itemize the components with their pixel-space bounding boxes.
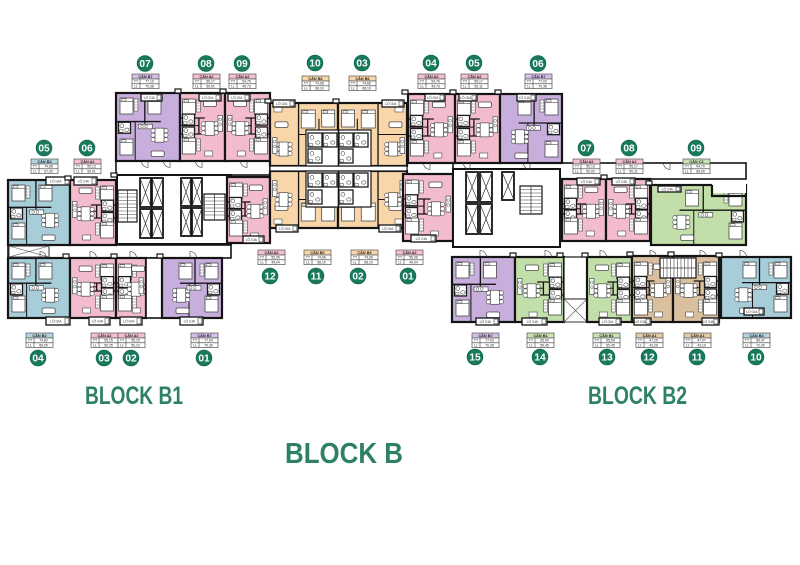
svg-text:47,25: 47,25 <box>649 339 658 343</box>
svg-text:TT: TT <box>33 165 37 169</box>
svg-text:LL: LL <box>463 85 467 89</box>
svg-text:LL: LL <box>398 261 402 265</box>
svg-text:70,36: 70,36 <box>538 85 547 89</box>
svg-text:TT: TT <box>638 339 642 343</box>
svg-text:13: 13 <box>601 353 613 364</box>
svg-text:TT: TT <box>120 339 124 343</box>
svg-text:12: 12 <box>264 272 276 283</box>
svg-text:09: 09 <box>236 59 248 70</box>
svg-text:65,54: 65,54 <box>606 339 615 343</box>
svg-text:77,03: 77,03 <box>538 80 547 84</box>
svg-text:CĂN A2: CĂN A2 <box>81 159 95 164</box>
svg-text:LÔ GIA: LÔ GIA <box>50 318 62 323</box>
svg-text:70,38: 70,38 <box>145 85 154 89</box>
svg-text:CĂN B6: CĂN B6 <box>310 250 324 255</box>
svg-text:CĂN B2: CĂN B2 <box>37 159 51 164</box>
svg-text:05: 05 <box>468 59 480 70</box>
svg-text:TT: TT <box>353 256 357 260</box>
svg-text:68,10: 68,10 <box>364 261 373 265</box>
svg-text:TT: TT <box>745 339 749 343</box>
svg-text:LÔ GIA: LÔ GIA <box>202 95 214 100</box>
svg-text:77,03: 77,03 <box>485 339 494 343</box>
svg-text:LL: LL <box>595 344 599 348</box>
svg-text:74,66: 74,66 <box>317 256 326 260</box>
svg-text:CĂN A2: CĂN A2 <box>623 159 637 164</box>
svg-text:LL: LL <box>685 170 689 174</box>
svg-text:CĂN B7: CĂN B7 <box>197 333 211 338</box>
svg-text:LL: LL <box>745 344 749 348</box>
svg-text:50,12: 50,12 <box>131 344 140 348</box>
svg-text:CĂN C2: CĂN C2 <box>689 159 703 164</box>
svg-text:LÔ GIA: LÔ GIA <box>519 95 531 100</box>
svg-text:01: 01 <box>198 354 210 365</box>
svg-text:85,00: 85,00 <box>696 170 705 174</box>
svg-text:TT: TT <box>474 339 478 343</box>
svg-text:BLOCK B1: BLOCK B1 <box>85 382 183 410</box>
svg-text:04: 04 <box>425 59 437 70</box>
svg-text:CĂN A1: CĂN A1 <box>643 333 657 338</box>
svg-text:LÔ GIA: LÔ GIA <box>602 319 614 324</box>
svg-text:06: 06 <box>532 59 544 70</box>
svg-text:LL: LL <box>304 87 308 91</box>
svg-text:LÔ GIA: LÔ GIA <box>184 318 196 323</box>
svg-text:TT: TT <box>260 256 264 260</box>
svg-text:49,04: 49,04 <box>271 261 280 265</box>
svg-text:50,11: 50,11 <box>474 85 482 89</box>
svg-text:CĂN A1: CĂN A1 <box>691 333 705 338</box>
svg-text:03: 03 <box>98 354 110 365</box>
svg-text:LL: LL <box>193 344 197 348</box>
svg-text:55,15: 55,15 <box>131 339 140 343</box>
svg-text:LL: LL <box>33 170 37 174</box>
svg-text:80,47: 80,47 <box>756 339 765 343</box>
svg-text:59,45: 59,45 <box>606 344 615 348</box>
svg-text:10: 10 <box>309 59 321 70</box>
svg-text:TT: TT <box>306 256 310 260</box>
svg-text:02: 02 <box>125 354 137 365</box>
svg-text:CĂN A2: CĂN A2 <box>468 74 482 79</box>
svg-text:LL: LL <box>686 344 690 348</box>
svg-text:43,10: 43,10 <box>697 344 706 348</box>
svg-text:LL: LL <box>351 87 355 91</box>
svg-text:70,39: 70,39 <box>485 344 494 348</box>
svg-text:TT: TT <box>463 80 467 84</box>
svg-text:LÔ GIA: LÔ GIA <box>746 309 758 314</box>
svg-text:CĂN B6: CĂN B6 <box>355 76 369 81</box>
svg-text:74,82: 74,82 <box>39 339 48 343</box>
svg-text:TT: TT <box>527 80 531 84</box>
svg-text:50,25: 50,25 <box>104 344 113 348</box>
svg-text:CĂN B4: CĂN B4 <box>749 333 764 338</box>
svg-text:06: 06 <box>81 144 93 155</box>
svg-text:74,66: 74,66 <box>362 82 371 86</box>
svg-text:10: 10 <box>750 353 762 364</box>
svg-text:LL: LL <box>638 344 642 348</box>
svg-text:03: 03 <box>356 59 368 70</box>
svg-text:68,10: 68,10 <box>315 87 324 91</box>
svg-text:TT: TT <box>575 165 579 169</box>
svg-text:LL: LL <box>618 170 622 174</box>
svg-text:50,02: 50,02 <box>586 170 595 174</box>
svg-text:LL: LL <box>306 261 310 265</box>
svg-text:12: 12 <box>643 353 655 364</box>
svg-text:LL: LL <box>195 85 199 89</box>
svg-text:BLOCK B2: BLOCK B2 <box>588 382 687 410</box>
svg-text:CĂN A2: CĂN A2 <box>265 250 279 255</box>
svg-text:LL: LL <box>76 170 80 174</box>
svg-text:54,76: 54,76 <box>242 80 251 84</box>
svg-text:55,06: 55,06 <box>271 256 280 260</box>
svg-text:LL: LL <box>353 261 357 265</box>
svg-text:LÔ GIA: LÔ GIA <box>231 95 243 100</box>
svg-text:LÔ GIA: LÔ GIA <box>427 95 439 100</box>
svg-text:50,11: 50,11 <box>629 170 637 174</box>
svg-text:CĂN B7: CĂN B7 <box>531 74 545 79</box>
svg-text:43,29: 43,29 <box>649 344 658 348</box>
svg-text:CĂN A2: CĂN A2 <box>425 74 439 79</box>
svg-text:68,10: 68,10 <box>317 261 326 265</box>
svg-text:11: 11 <box>311 272 322 283</box>
svg-text:CĂN A2: CĂN A2 <box>200 74 214 79</box>
svg-text:07: 07 <box>580 144 592 155</box>
svg-text:LÔ GIA: LÔ GIA <box>279 226 291 231</box>
svg-text:LÔ GIA: LÔ GIA <box>92 318 104 323</box>
svg-text:50,91: 50,91 <box>206 85 215 89</box>
svg-text:LÔ GIA: LÔ GIA <box>460 95 472 100</box>
svg-text:LL: LL <box>474 344 478 348</box>
svg-text:LÔ GIA: LÔ GIA <box>78 178 90 183</box>
svg-text:LL: LL <box>527 85 531 89</box>
svg-text:08: 08 <box>623 144 635 155</box>
svg-text:LÔ GIA: LÔ GIA <box>385 101 397 106</box>
svg-text:LL: LL <box>93 344 97 348</box>
svg-text:CĂN A2: CĂN A2 <box>580 159 594 164</box>
svg-text:TT: TT <box>304 82 308 86</box>
svg-text:LÔ GIA: LÔ GIA <box>480 319 492 324</box>
svg-text:65,00: 65,00 <box>540 339 549 343</box>
svg-text:01: 01 <box>402 272 414 283</box>
svg-text:77,04: 77,04 <box>204 339 213 343</box>
svg-text:TT: TT <box>595 339 599 343</box>
svg-text:66,09: 66,09 <box>39 344 48 348</box>
svg-text:55,17: 55,17 <box>629 165 638 169</box>
svg-text:15: 15 <box>469 353 481 364</box>
svg-text:70,30: 70,30 <box>204 344 213 348</box>
svg-text:49,73: 49,73 <box>242 85 251 89</box>
svg-text:TT: TT <box>231 80 235 84</box>
svg-text:CĂN B6: CĂN B6 <box>308 76 322 81</box>
svg-text:94,70: 94,70 <box>696 165 705 169</box>
svg-text:LÔ GIA: LÔ GIA <box>662 186 674 191</box>
svg-text:CĂN A2: CĂN A2 <box>236 74 250 79</box>
svg-text:55,13: 55,13 <box>586 165 595 169</box>
svg-text:LL: LL <box>260 261 264 265</box>
svg-text:CĂN B1: CĂN B1 <box>599 333 613 338</box>
svg-text:LÔ GIA: LÔ GIA <box>276 101 288 106</box>
svg-text:LÔ GIA: LÔ GIA <box>50 178 62 183</box>
svg-text:TT: TT <box>686 339 690 343</box>
svg-text:04: 04 <box>32 354 44 365</box>
svg-text:CĂN A2: CĂN A2 <box>98 333 112 338</box>
svg-text:LÔ GIA: LÔ GIA <box>416 236 428 241</box>
svg-text:TT: TT <box>398 256 402 260</box>
svg-text:47,07: 47,07 <box>697 339 706 343</box>
svg-text:TT: TT <box>93 339 97 343</box>
svg-text:TT: TT <box>529 339 533 343</box>
svg-text:BLOCK B: BLOCK B <box>285 438 403 470</box>
svg-text:68,10: 68,10 <box>362 87 371 91</box>
svg-text:55,06: 55,06 <box>409 256 418 260</box>
svg-text:CĂN A2: CĂN A2 <box>403 250 417 255</box>
svg-text:55,15: 55,15 <box>104 339 113 343</box>
svg-text:55,13: 55,13 <box>87 165 96 169</box>
svg-text:08: 08 <box>200 59 212 70</box>
svg-text:LÔ GIA: LÔ GIA <box>144 95 156 100</box>
svg-text:LÔ GIA: LÔ GIA <box>527 319 539 324</box>
svg-text:LÔ GIA: LÔ GIA <box>123 318 135 323</box>
svg-text:LÔ GIA: LÔ GIA <box>581 179 593 184</box>
svg-text:CĂN B7: CĂN B7 <box>138 74 152 79</box>
svg-text:LL: LL <box>28 344 32 348</box>
svg-text:74,66: 74,66 <box>315 82 324 86</box>
svg-text:09: 09 <box>690 144 702 155</box>
svg-text:TT: TT <box>685 165 689 169</box>
svg-text:49,04: 49,04 <box>409 261 418 265</box>
svg-text:CĂN B1: CĂN B1 <box>533 333 547 338</box>
svg-text:54,76: 54,76 <box>431 80 440 84</box>
svg-text:CĂN A2: CĂN A2 <box>125 333 139 338</box>
svg-text:50,01: 50,01 <box>87 170 96 174</box>
svg-text:LL: LL <box>120 344 124 348</box>
svg-text:07: 07 <box>139 59 151 70</box>
svg-text:49,73: 49,73 <box>431 85 440 89</box>
svg-text:TT: TT <box>76 165 80 169</box>
svg-text:77,10: 77,10 <box>145 80 154 84</box>
svg-text:LÔ GIA: LÔ GIA <box>635 319 647 324</box>
svg-text:LÔ GIA: LÔ GIA <box>703 319 715 324</box>
svg-text:05: 05 <box>38 144 50 155</box>
svg-text:LL: LL <box>134 85 138 89</box>
svg-text:67,00: 67,00 <box>44 170 53 174</box>
svg-text:74,68: 74,68 <box>44 165 53 169</box>
svg-text:CĂN B7: CĂN B7 <box>478 333 492 338</box>
svg-text:14: 14 <box>534 353 546 364</box>
svg-text:LÔ GIA: LÔ GIA <box>616 179 628 184</box>
svg-text:LÔ GIA: LÔ GIA <box>382 226 394 231</box>
svg-text:59,45: 59,45 <box>540 344 549 348</box>
svg-text:TT: TT <box>420 80 424 84</box>
svg-text:11: 11 <box>692 353 703 364</box>
svg-text:55,17: 55,17 <box>206 80 215 84</box>
svg-text:LL: LL <box>575 170 579 174</box>
svg-text:LL: LL <box>529 344 533 348</box>
svg-text:TT: TT <box>195 80 199 84</box>
svg-text:74,66: 74,66 <box>364 256 373 260</box>
svg-text:02: 02 <box>352 272 364 283</box>
svg-text:TT: TT <box>351 82 355 86</box>
svg-text:TT: TT <box>618 165 622 169</box>
svg-text:CĂN B2: CĂN B2 <box>32 333 46 338</box>
svg-text:TT: TT <box>193 339 197 343</box>
svg-text:TT: TT <box>134 80 138 84</box>
svg-text:72,90: 72,90 <box>756 344 765 348</box>
svg-text:TT: TT <box>28 339 32 343</box>
svg-text:55,17: 55,17 <box>474 80 483 84</box>
svg-text:CĂN B6: CĂN B6 <box>357 250 371 255</box>
svg-text:LL: LL <box>231 85 235 89</box>
svg-text:LL: LL <box>420 85 424 89</box>
svg-text:LÔ GIA: LÔ GIA <box>246 237 258 242</box>
